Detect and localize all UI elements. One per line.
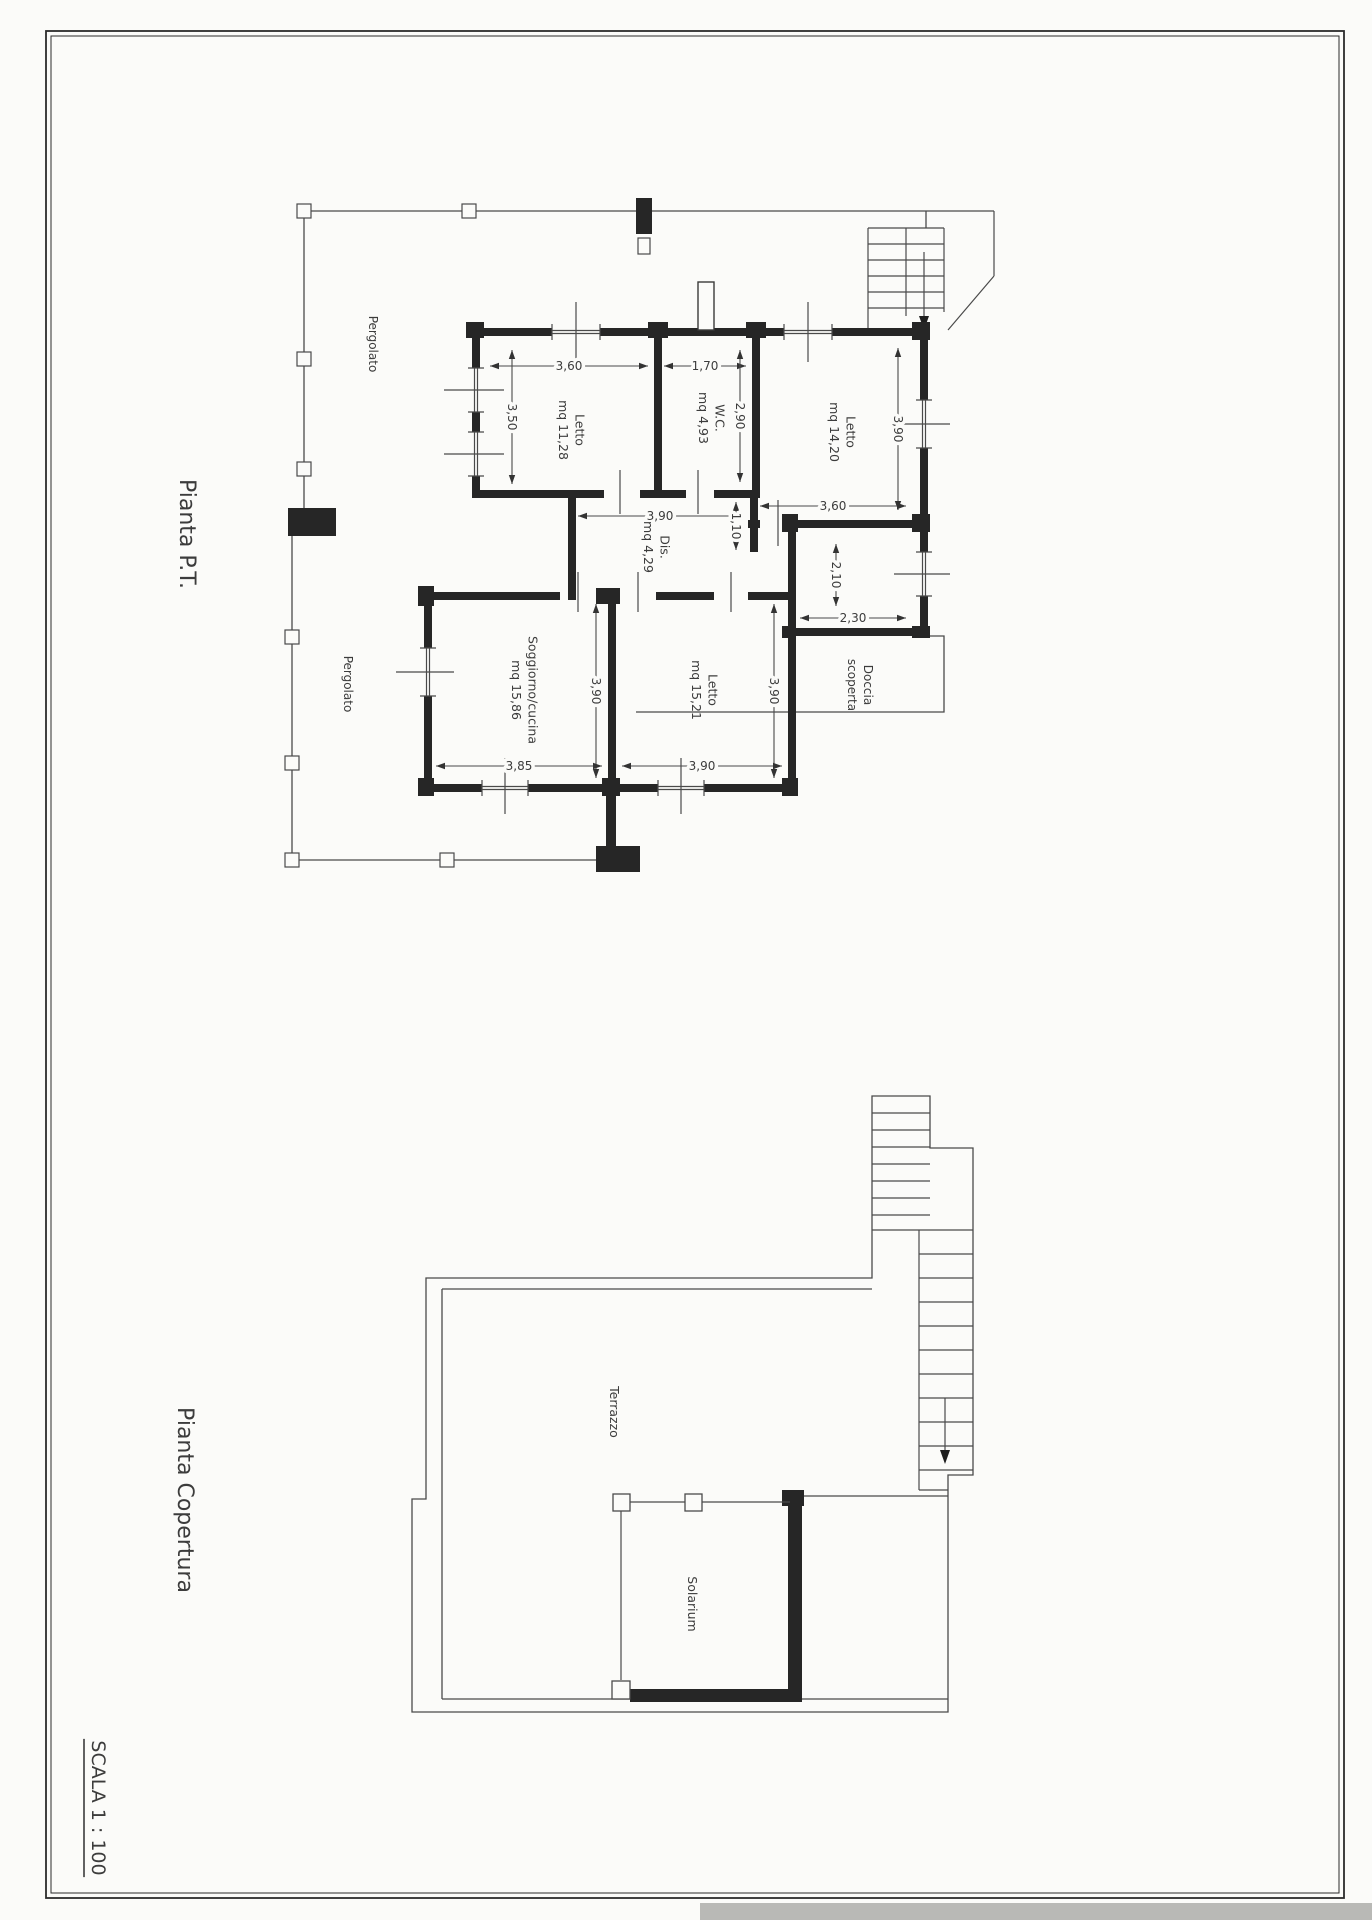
dim-letto2-height: 3,90 xyxy=(891,348,905,510)
svg-text:3,60: 3,60 xyxy=(556,359,583,373)
svg-text:mq 14,20: mq 14,20 xyxy=(827,402,842,462)
dim-letto1-height: 3,50 xyxy=(505,350,519,484)
outdoor-label-pergolato-1: Pergolato xyxy=(366,316,380,373)
window-symbol xyxy=(444,368,504,412)
svg-text:mq 11,28: mq 11,28 xyxy=(556,400,571,460)
svg-text:1,10: 1,10 xyxy=(729,513,743,540)
svg-text:Pianta Copertura: Pianta Copertura xyxy=(172,1407,197,1593)
room-label-soggiorno: Soggiorno/cucinamq 15,86 xyxy=(509,636,541,744)
outdoor-label-doccia: Docciascoperta xyxy=(845,659,875,711)
svg-text:Pergolato: Pergolato xyxy=(366,316,380,373)
pergola-post-hollow xyxy=(638,238,650,254)
svg-text:Terrazzo: Terrazzo xyxy=(607,1385,622,1438)
svg-text:Letto: Letto xyxy=(572,414,587,446)
svg-text:Letto: Letto xyxy=(843,416,858,448)
room-label-dis: Dis.mq 4,29 xyxy=(641,521,673,573)
dim-wc-width: 1,70 xyxy=(664,359,746,373)
dim-wc-height: 2,90 xyxy=(733,350,747,482)
svg-text:Pergolato: Pergolato xyxy=(341,656,355,713)
scan-shadow xyxy=(700,1903,1372,1920)
room-label-wc: W.C.mq 4,93 xyxy=(696,392,728,444)
svg-text:3,90: 3,90 xyxy=(767,678,781,705)
external-staircase xyxy=(868,211,994,332)
svg-text:3,50: 3,50 xyxy=(505,404,519,431)
svg-text:Soggiorno/cucina: Soggiorno/cucina xyxy=(525,636,540,744)
dim-corridor-niche: 1,10 xyxy=(729,502,743,550)
roof-label-terrazzo: Terrazzo xyxy=(607,1385,622,1438)
ground-floor-plan xyxy=(285,198,994,872)
svg-text:3,90: 3,90 xyxy=(689,759,716,773)
svg-text:3,60: 3,60 xyxy=(820,499,847,513)
svg-text:3,90: 3,90 xyxy=(589,678,603,705)
scale-label: SCALA 1 : 100 xyxy=(84,1739,109,1877)
dim-letto3-height: 3,90 xyxy=(767,604,781,778)
roof-label-solarium: Solarium xyxy=(685,1576,700,1631)
svg-text:SCALA 1 : 100: SCALA 1 : 100 xyxy=(87,1740,109,1875)
svg-text:mq 4,29: mq 4,29 xyxy=(641,521,656,573)
dim-letto2-width: 3,60 xyxy=(760,499,906,513)
solarium-open-side xyxy=(621,1502,790,1680)
window-symbol xyxy=(444,432,504,476)
outdoor-label-pergolato-2: Pergolato xyxy=(341,656,355,713)
roof-staircase xyxy=(872,1113,973,1490)
svg-text:Solarium: Solarium xyxy=(685,1576,700,1631)
pergola xyxy=(292,211,944,860)
svg-text:mq 15,86: mq 15,86 xyxy=(509,660,524,720)
solarium-walls xyxy=(630,1490,804,1702)
svg-text:Doccia: Doccia xyxy=(861,665,875,705)
dim-soggiorno-height: 3,90 xyxy=(589,604,603,778)
svg-text:mq 4,93: mq 4,93 xyxy=(696,392,711,444)
svg-text:3,90: 3,90 xyxy=(891,416,905,443)
dim-letto3-width: 3,90 xyxy=(622,759,782,773)
svg-text:scoperta: scoperta xyxy=(845,659,859,711)
window-symbol xyxy=(552,302,600,362)
ground-walls xyxy=(424,328,928,850)
window-symbol xyxy=(396,648,454,696)
roof-stair-arrow xyxy=(940,1450,950,1464)
dim-letto1-width: 3,60 xyxy=(490,359,648,373)
svg-text:2,30: 2,30 xyxy=(840,611,867,625)
floorplan-drawing: 3,601,703,502,903,903,603,901,103,903,90… xyxy=(0,0,1372,1920)
roof-plan-title: Pianta Copertura xyxy=(172,1407,197,1593)
svg-text:Letto: Letto xyxy=(705,674,720,706)
svg-text:3,85: 3,85 xyxy=(506,759,533,773)
svg-text:mq 15,21: mq 15,21 xyxy=(689,660,704,720)
window-symbol xyxy=(894,552,950,596)
room-label-letto-1: Lettomq 11,28 xyxy=(556,400,588,460)
svg-text:Pianta P.T.: Pianta P.T. xyxy=(174,479,199,589)
drawing-sheet: 3,601,703,502,903,903,603,901,103,903,90… xyxy=(0,0,1372,1920)
svg-text:W.C.: W.C. xyxy=(712,404,727,432)
ground-plan-title: Pianta P.T. xyxy=(174,479,199,589)
dim-soggiorno-width: 3,85 xyxy=(436,759,602,773)
svg-text:2,10: 2,10 xyxy=(829,562,843,589)
svg-text:1,70: 1,70 xyxy=(692,359,719,373)
dim-smallroom-height: 2,10 xyxy=(829,544,843,606)
svg-text:Dis.: Dis. xyxy=(657,535,672,559)
dim-smallroom-width: 2,30 xyxy=(800,611,906,625)
chimney xyxy=(698,282,714,330)
room-label-letto-3: Lettomq 15,21 xyxy=(689,660,721,720)
window-symbol xyxy=(784,302,832,362)
svg-text:2,90: 2,90 xyxy=(733,403,747,430)
room-label-letto-2: Lettomq 14,20 xyxy=(827,402,859,462)
wall-pillars xyxy=(418,322,930,796)
dim-corridor-width: 3,90 xyxy=(578,509,742,523)
